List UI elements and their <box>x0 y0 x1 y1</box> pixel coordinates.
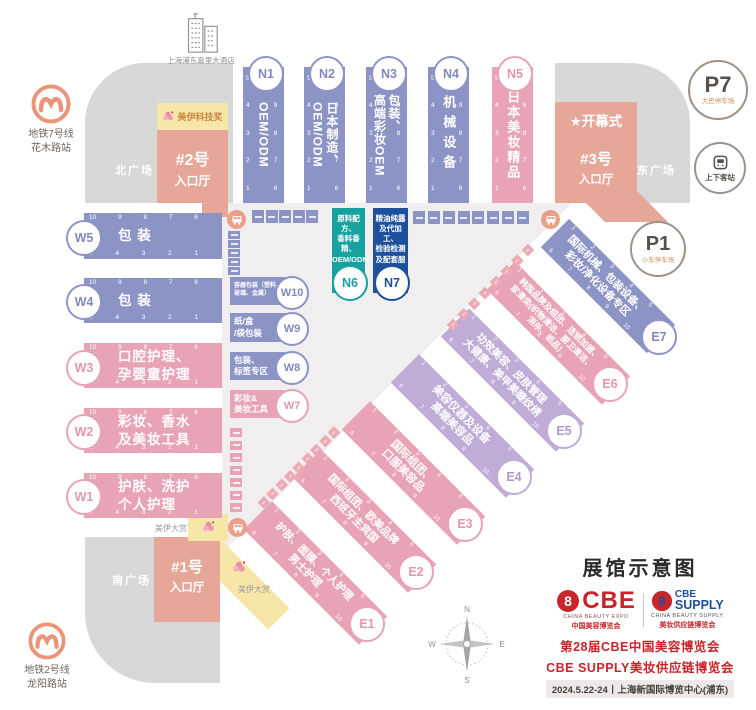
mini-booths-row-left <box>252 210 318 223</box>
hall-e1-badge: E1 <box>349 606 385 642</box>
hall-n4-ticks-left: 54321 <box>431 76 435 192</box>
hall-w2-ticks-bottom: 54321 <box>89 445 198 452</box>
brand-logos: 8 CBE CHINA BEAUTY EXPO 中国美容博览会 8 CBESUP… <box>540 589 740 631</box>
entrance-1-label: #1号 入口厅 <box>154 556 220 595</box>
hall-n5-badge: N5 <box>497 56 533 92</box>
hall-w1-ticks-bottom: 54321 <box>89 510 198 517</box>
bus-stop-icon <box>228 518 247 537</box>
cbe-supply-logo: 8 CBESUPPLY CHINA BEAUTY SUPPLY 美妆供应链博览会 <box>651 590 724 630</box>
hall-w5-ticks-top: 109876 <box>89 215 198 222</box>
entrance-3-label: #3号 入口厅 <box>555 148 637 187</box>
hall-w5-badge: W5 <box>66 220 102 256</box>
hall-w1-ticks-top: 109876 <box>89 475 198 482</box>
hall-n2-ticks-left: 54321 <box>307 76 311 192</box>
svg-text:N: N <box>464 605 470 614</box>
hall-e5-badge: E5 <box>546 413 582 449</box>
hall-n4-ticks-right: 109876 <box>459 76 466 192</box>
hall-n6-badge: N6 <box>332 265 368 301</box>
hall-w8-label: 包装、标签专区 <box>230 355 268 377</box>
hall-w7-badge: W7 <box>275 389 309 423</box>
opening-ceremony-label: ★开幕式 <box>555 110 637 130</box>
dropoff-station-badge: 上下客站 <box>694 142 746 194</box>
hall-w3-badge: W3 <box>66 350 102 386</box>
grand-award-label: 美伊大赏 <box>238 584 270 595</box>
hall-n1-ticks-right: 109876 <box>274 76 281 192</box>
logo-divider <box>643 593 644 627</box>
hall-w3-ticks-bottom: 54321 <box>89 380 198 387</box>
north-plaza-label: 北广场 <box>115 162 154 178</box>
grand-award-box <box>188 514 228 541</box>
hall-w3-ticks-top: 109876 <box>89 345 198 352</box>
compass-icon: N E S W <box>427 604 507 684</box>
hall-e3-badge: E3 <box>447 506 483 542</box>
hall-w9-badge: W9 <box>275 312 309 346</box>
cbe-supply-flower-icon: 8 <box>651 590 673 612</box>
mini-booths-col-south <box>230 428 242 512</box>
metro2-station-label: 地铁2号线龙阳路站 <box>9 664 85 691</box>
hall-n1-badge: N1 <box>248 56 284 92</box>
event-title-line1: 第28届CBE中国美容博览会 <box>540 636 740 655</box>
hall-n6-label: 原料配方、香料香精、OEM/ODM <box>332 208 365 265</box>
meiyi-flower-icon <box>162 110 174 124</box>
hall-w2-badge: W2 <box>66 414 102 450</box>
hotel-icon <box>176 12 224 56</box>
hall-w3: 109876 54321 口腔护理、孕婴童护理 <box>84 343 222 388</box>
hall-n4-label: 机械设备 <box>441 95 457 175</box>
parking-p1-badge: P1 小车停车场 <box>630 221 686 277</box>
svg-text:S: S <box>464 676 469 684</box>
event-title-line2: CBE SUPPLY美妆供应链博览会 <box>540 657 740 676</box>
hall-e4-label: 美容仪器及设备高端美容品 <box>419 383 505 469</box>
hall-e7-badge: E7 <box>641 319 677 355</box>
cbe-logo: 8 CBE CHINA BEAUTY EXPO 中国美容博览会 <box>556 589 636 631</box>
star-icon: ★ <box>570 114 582 129</box>
hall-w9-label: 纸/盒/袋包装 <box>230 316 262 338</box>
hall-n1-ticks-left: 54321 <box>246 76 250 192</box>
meiyi-flower-icon <box>232 560 246 576</box>
east-plaza-label: 东广场 <box>637 162 676 178</box>
tech-award-banner: 美伊科技奖 <box>157 103 228 130</box>
hall-w7-label: 彩妆&美妆工具 <box>230 393 268 415</box>
metro-logo-icon <box>28 622 66 660</box>
hall-e6-badge: E6 <box>592 366 628 402</box>
svg-text:E: E <box>499 640 504 649</box>
parking-p7-badge: P7 大巴停车场 <box>688 60 748 120</box>
bus-stop-icon <box>541 210 560 229</box>
hall-n5-ticks-right: 109876 <box>523 76 530 192</box>
mini-booths-row-right <box>413 211 529 224</box>
hall-n3-ticks-left: 54321 <box>369 76 373 192</box>
hall-n2-ticks-right: 109876 <box>335 76 342 192</box>
metro7-station-label: 地铁7号线花木路站 <box>13 128 89 155</box>
hall-w8-badge: W8 <box>275 351 309 385</box>
mini-booths-col-left <box>228 231 240 275</box>
meiyi-flower-icon <box>202 520 215 535</box>
hall-w2: 109876 54321 彩妆、香水及美妆工具 <box>84 408 222 453</box>
south-plaza-label: 南广场 <box>112 572 151 588</box>
svg-text:8: 8 <box>658 594 665 609</box>
tech-award-label: 美伊科技奖 <box>177 110 222 123</box>
dropoff-icon <box>712 154 729 171</box>
hall-n5-ticks-left: 54321 <box>495 76 499 192</box>
metro-logo-icon <box>31 84 71 124</box>
footer: 展馆示意图 8 CBE CHINA BEAUTY EXPO 中国美容博览会 8 … <box>540 552 740 698</box>
hall-n7-badge: N7 <box>374 265 410 301</box>
hall-n1-label: OEM/ODM <box>256 102 270 168</box>
hall-w4-ticks-bottom: 54321 <box>89 315 198 322</box>
entrance-2-label: #2号 入口厅 <box>157 146 228 189</box>
hotel-label: 上海浦东嘉里大酒店 <box>158 55 244 66</box>
hall-w5-ticks-bottom: 54321 <box>89 251 198 258</box>
event-date-venue: 2024.5.22-24丨上海新国际博览中心(浦东) <box>546 680 734 698</box>
svg-text:8: 8 <box>564 593 572 609</box>
svg-text:W: W <box>428 640 436 649</box>
hall-w10-badge: W10 <box>275 276 309 310</box>
hall-w4: 109876 54321 包 装 <box>84 278 222 323</box>
hall-w2-ticks-top: 109876 <box>89 410 198 417</box>
hall-n2-badge: N2 <box>309 56 345 92</box>
hall-e4-badge: E4 <box>496 459 532 495</box>
hall-w4-badge: W4 <box>66 284 102 320</box>
hall-w4-ticks-top: 109876 <box>89 280 198 287</box>
cbe-flower-icon: 8 <box>556 589 580 613</box>
hall-e2-badge: E2 <box>398 554 434 590</box>
hall-n3-ticks-right: 109876 <box>397 76 404 192</box>
hall-n4-badge: N4 <box>433 56 469 92</box>
hall-w1-badge: W1 <box>66 479 102 515</box>
hall-n3-badge: N3 <box>371 56 407 92</box>
bus-stop-icon <box>227 210 246 229</box>
hall-w1: 109876 54321 护肤、洗护个人护理 <box>84 473 222 518</box>
exhibition-map: 北广场 东广场 南广场 美伊科技奖 #2号 入口厅 ★开幕式 #3号 入口厅 #… <box>0 0 756 710</box>
hall-w5: 109876 54321 包 装 <box>84 213 222 259</box>
hall-n5-label: 日本美妆精品 <box>505 90 521 180</box>
page-title: 展馆示意图 <box>540 552 740 581</box>
grand-award-label: 美伊大赏 <box>155 523 187 534</box>
